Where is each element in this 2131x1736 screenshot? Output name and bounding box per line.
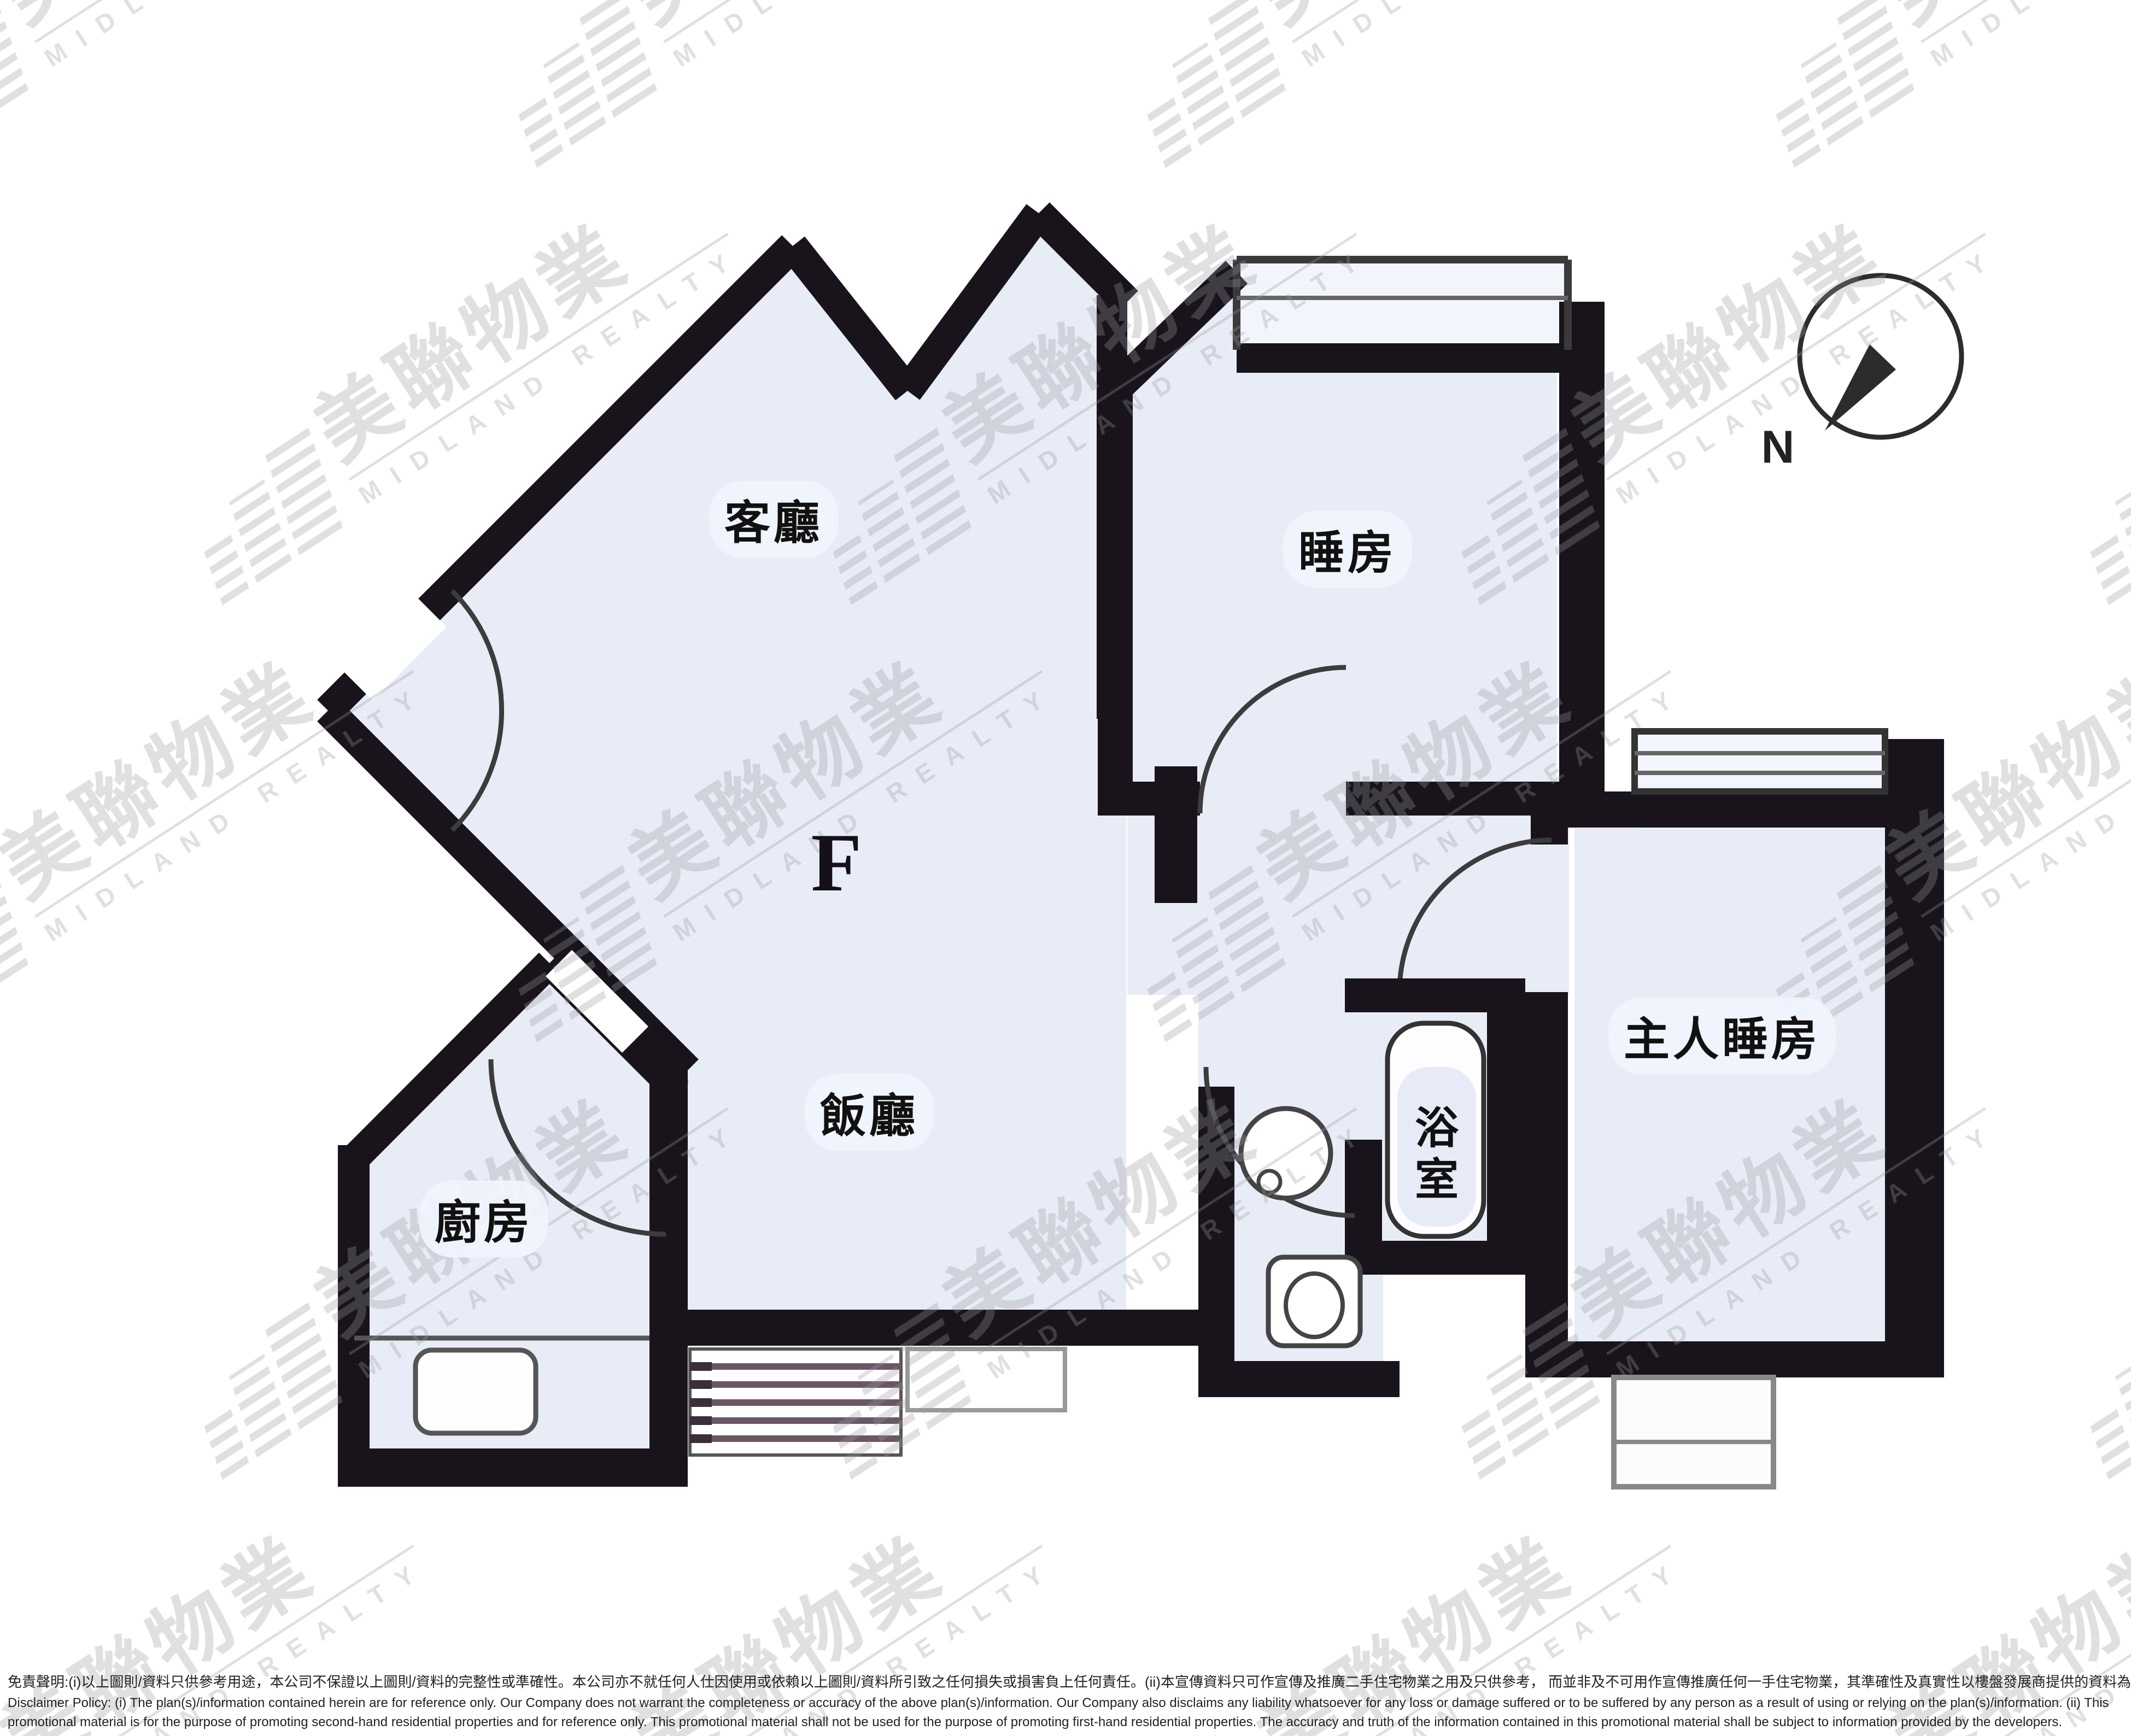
- toilet: [1268, 1257, 1360, 1346]
- dining-kitchen-wall: [649, 1067, 688, 1487]
- stairs: [690, 1349, 901, 1455]
- compass-icon: [1800, 275, 1962, 437]
- floor-plan-drawing: [0, 0, 2131, 1736]
- disclaimer: 免責聲明:(i)以上圖則/資料只供參考用途，本公司不保證以上圖則/資料的完整性或…: [8, 1672, 2123, 1732]
- compass-north-label: N: [1761, 421, 1795, 474]
- kitchen-sink: [415, 1350, 536, 1433]
- washbasin: [1241, 1109, 1331, 1198]
- disclaimer-english: Disclaimer Policy: (i) The plan(s)/infor…: [8, 1693, 2123, 1732]
- bathroom-label: 浴室: [1415, 1103, 1459, 1206]
- dining-bottom-wall: [688, 1310, 1200, 1346]
- unit-letter: F: [811, 815, 862, 910]
- bedroom-label: 睡房: [1283, 511, 1412, 588]
- kitchen-label: 廚房: [419, 1181, 548, 1258]
- master-bedroom-label: 主人睡房: [1608, 998, 1836, 1075]
- master-ac-platform: [1614, 1377, 1773, 1487]
- window-ledge: [908, 1349, 1065, 1410]
- floor-plan-page: 美聯物業MIDLAND REALTY美聯物業MIDLAND REALTY美聯物業…: [0, 0, 2131, 1736]
- dining-room-label: 飯廳: [805, 1074, 934, 1151]
- disclaimer-chinese: 免責聲明:(i)以上圖則/資料只供參考用途，本公司不保證以上圖則/資料的完整性或…: [8, 1672, 2123, 1692]
- living-room-label: 客廳: [709, 481, 838, 558]
- master-bay-window: [1635, 731, 1885, 791]
